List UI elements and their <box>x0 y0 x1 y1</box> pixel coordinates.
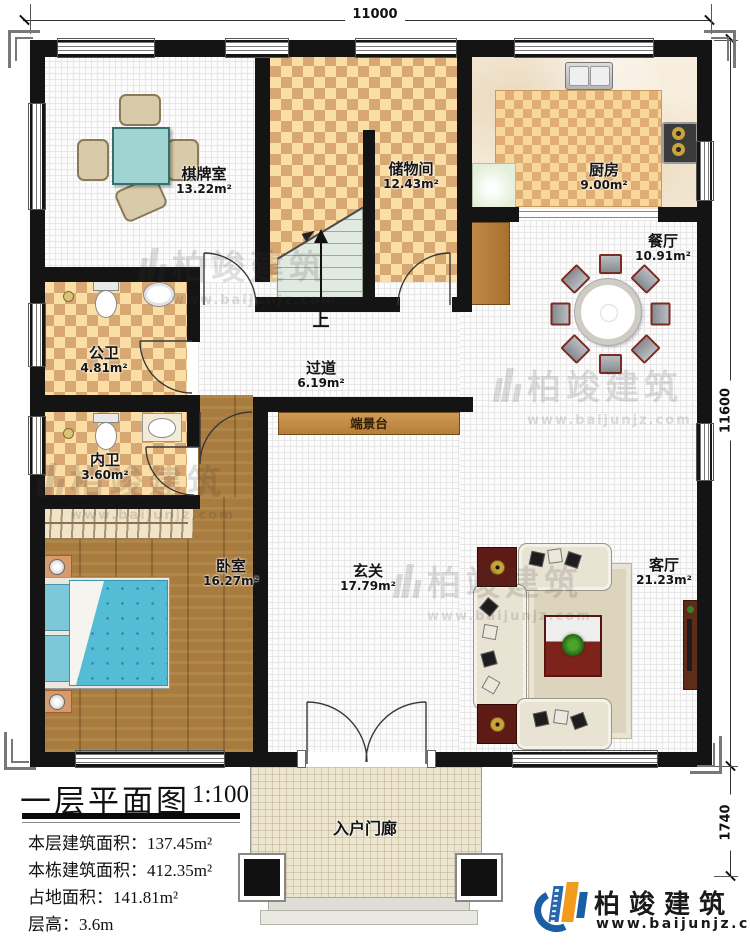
title-rule-thick <box>22 813 240 819</box>
dim-ext <box>714 876 738 877</box>
door-storage-room <box>398 253 450 305</box>
stat-building-area: 本栋建筑面积：412.35m² <box>28 857 212 884</box>
door-entry-right <box>366 702 426 764</box>
label-bedroom: 卧室 16.27m² <box>185 558 277 589</box>
logo-bar-blue-right <box>576 892 588 918</box>
door-chess-room <box>204 253 256 305</box>
dim-top-value: 11000 <box>345 7 405 22</box>
label-living-room: 客厅 21.23m² <box>618 557 710 588</box>
corner-bracket-br <box>690 736 722 774</box>
plan-stats: 本层建筑面积：137.45m² 本栋建筑面积：412.35m² 占地面积：141… <box>28 830 212 938</box>
label-private-bath: 内卫 3.60m² <box>59 452 151 483</box>
porch-column-left <box>238 853 286 902</box>
door-entry-left <box>307 702 367 764</box>
label-corridor: 过道 6.19m² <box>275 360 367 391</box>
title-rule-thin <box>22 822 240 823</box>
corner-bracket-tr <box>704 30 736 68</box>
stat-floor-area: 本层建筑面积：137.45m² <box>28 830 212 857</box>
label-chess-room: 棋牌室 13.22m² <box>158 166 250 197</box>
stat-footprint-area: 占地面积：141.81m² <box>28 884 212 911</box>
floor-plan-canvas: 端景台 上 <box>0 0 750 950</box>
label-public-bath: 公卫 4.81m² <box>58 345 150 376</box>
corner-bracket-tl <box>8 30 40 68</box>
dim-right-upper-value: 11600 <box>719 381 734 441</box>
door-bedroom <box>200 412 252 464</box>
stat-floor-height: 层高：3.6m <box>28 911 212 938</box>
label-dining-room: 餐厅 10.91m² <box>617 233 709 264</box>
label-entry-porch: 入户门廊 <box>319 820 411 838</box>
plan-scale: 1:100 <box>192 781 249 809</box>
logo-site-text: www.baijunjz.com <box>596 916 750 932</box>
dim-right-lower-value: 1740 <box>719 795 734 851</box>
door-private-bath <box>146 447 198 495</box>
company-logo: 柏竣建筑 www.baijunjz.com <box>534 880 739 938</box>
label-kitchen: 厨房 9.00m² <box>558 162 650 193</box>
porch-step-2 <box>260 910 478 925</box>
corner-bracket-bl <box>4 732 36 770</box>
label-foyer: 玄关 17.79m² <box>322 563 414 594</box>
porch-column-right <box>455 853 503 902</box>
label-storage-room: 储物间 12.43m² <box>365 161 457 192</box>
